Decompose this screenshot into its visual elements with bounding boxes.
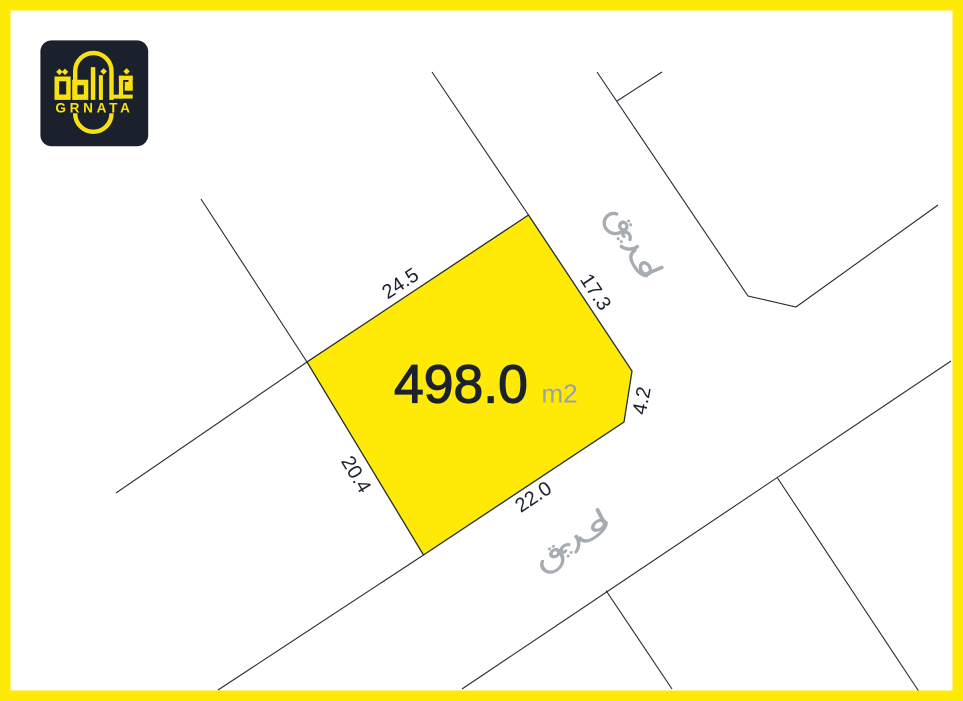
svg-text:GRNATA: GRNATA <box>55 100 133 115</box>
svg-text:498.0: 498.0 <box>394 356 528 415</box>
svg-text:m2: m2 <box>542 378 578 408</box>
